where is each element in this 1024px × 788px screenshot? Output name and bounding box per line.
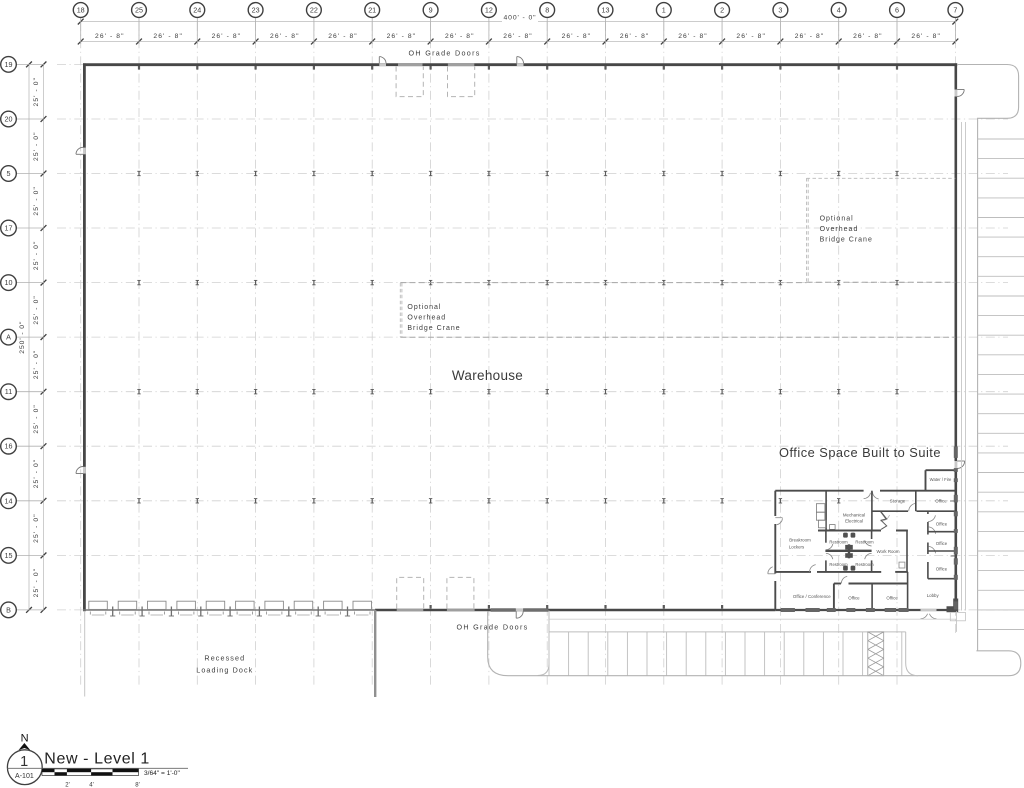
svg-text:B: B xyxy=(6,605,11,614)
svg-text:25' - 0": 25' - 0" xyxy=(33,459,40,489)
svg-text:4: 4 xyxy=(837,6,841,15)
svg-text:20: 20 xyxy=(5,115,13,124)
svg-text:400' - 0": 400' - 0" xyxy=(504,15,537,22)
svg-text:19: 19 xyxy=(5,60,13,69)
svg-text:Breakroom: Breakroom xyxy=(789,538,811,543)
svg-text:26' - 8": 26' - 8" xyxy=(620,33,650,40)
svg-text:Optional: Optional xyxy=(820,215,854,222)
svg-text:Lockers: Lockers xyxy=(789,545,805,550)
svg-text:26' - 8": 26' - 8" xyxy=(212,33,242,40)
svg-text:16: 16 xyxy=(5,442,13,451)
svg-text:Mechanical: Mechanical xyxy=(843,513,865,518)
svg-text:14: 14 xyxy=(5,496,13,505)
svg-text:26' - 8": 26' - 8" xyxy=(328,33,358,40)
svg-text:9: 9 xyxy=(429,6,433,15)
svg-text:25' - 0": 25' - 0" xyxy=(33,568,40,598)
svg-text:Bridge Crane: Bridge Crane xyxy=(820,237,873,244)
svg-text:10: 10 xyxy=(5,278,13,287)
svg-text:Office Space Built to Suite: Office Space Built to Suite xyxy=(779,445,941,460)
svg-text:OH Grade Doors: OH Grade Doors xyxy=(456,623,528,632)
svg-text:2': 2' xyxy=(65,783,69,788)
svg-text:26' - 8": 26' - 8" xyxy=(153,33,183,40)
svg-text:Office: Office xyxy=(886,596,898,601)
svg-text:26' - 8": 26' - 8" xyxy=(95,33,125,40)
svg-text:25' - 0": 25' - 0" xyxy=(33,186,40,216)
svg-text:Electrical: Electrical xyxy=(845,519,863,524)
svg-text:26' - 8": 26' - 8" xyxy=(678,33,708,40)
svg-text:25' - 0": 25' - 0" xyxy=(33,241,40,271)
svg-text:26' - 8": 26' - 8" xyxy=(445,33,475,40)
svg-text:Restroom: Restroom xyxy=(855,540,874,545)
svg-text:A: A xyxy=(6,333,11,342)
svg-text:Bridge Crane: Bridge Crane xyxy=(407,325,460,332)
svg-text:Office: Office xyxy=(936,541,948,546)
svg-text:4': 4' xyxy=(89,783,93,788)
svg-text:Warehouse: Warehouse xyxy=(452,368,523,383)
svg-text:Office: Office xyxy=(936,567,948,572)
svg-text:Storage: Storage xyxy=(890,499,906,504)
svg-text:Loading Dock: Loading Dock xyxy=(196,665,253,674)
svg-text:25' - 0": 25' - 0" xyxy=(33,131,40,161)
svg-text:8: 8 xyxy=(545,6,549,15)
svg-text:25' - 0": 25' - 0" xyxy=(33,404,40,434)
svg-text:6: 6 xyxy=(895,6,899,15)
svg-text:25: 25 xyxy=(135,6,143,15)
svg-text:26' - 8": 26' - 8" xyxy=(736,33,766,40)
svg-text:26' - 8": 26' - 8" xyxy=(911,33,941,40)
svg-text:18: 18 xyxy=(77,6,85,15)
svg-text:3/64" = 1'-0": 3/64" = 1'-0" xyxy=(144,770,180,777)
svg-text:7: 7 xyxy=(953,6,957,15)
svg-text:Office / Conference: Office / Conference xyxy=(793,594,831,599)
svg-text:8': 8' xyxy=(135,783,139,788)
svg-text:13: 13 xyxy=(602,6,610,15)
svg-text:New - Level 1: New - Level 1 xyxy=(44,751,150,768)
svg-text:N: N xyxy=(21,733,29,745)
svg-text:17: 17 xyxy=(5,224,13,233)
svg-text:15: 15 xyxy=(5,551,13,560)
svg-text:26' - 8": 26' - 8" xyxy=(270,33,300,40)
svg-text:Restroom: Restroom xyxy=(855,562,874,567)
svg-text:21: 21 xyxy=(368,6,376,15)
svg-text:24: 24 xyxy=(193,6,201,15)
svg-text:Work Room: Work Room xyxy=(876,549,899,554)
svg-text:Restroom: Restroom xyxy=(829,540,848,545)
svg-text:26' - 8": 26' - 8" xyxy=(503,33,533,40)
svg-text:Lobby: Lobby xyxy=(927,593,940,598)
svg-text:26' - 8": 26' - 8" xyxy=(387,33,417,40)
svg-text:23: 23 xyxy=(252,6,260,15)
svg-text:Recessed: Recessed xyxy=(204,654,245,663)
svg-text:Overhead: Overhead xyxy=(820,226,859,233)
svg-text:A-101: A-101 xyxy=(15,773,34,780)
svg-text:3: 3 xyxy=(778,6,782,15)
svg-text:25' - 0": 25' - 0" xyxy=(33,513,40,543)
svg-text:22: 22 xyxy=(310,6,318,15)
svg-text:Optional: Optional xyxy=(407,304,441,311)
svg-text:Overhead: Overhead xyxy=(407,314,446,321)
svg-text:26' - 8": 26' - 8" xyxy=(853,33,883,40)
svg-text:Office: Office xyxy=(848,596,860,601)
svg-text:5: 5 xyxy=(7,169,11,178)
svg-text:2: 2 xyxy=(720,6,724,15)
svg-text:1: 1 xyxy=(20,754,28,770)
svg-text:11: 11 xyxy=(5,387,12,396)
svg-text:Office: Office xyxy=(936,522,948,527)
svg-text:Office: Office xyxy=(935,499,947,504)
svg-text:12: 12 xyxy=(485,6,493,15)
svg-text:25' - 0": 25' - 0" xyxy=(33,77,40,107)
svg-text:25' - 0": 25' - 0" xyxy=(33,295,40,325)
svg-text:26' - 8": 26' - 8" xyxy=(562,33,592,40)
svg-text:1: 1 xyxy=(662,6,666,15)
svg-text:25' - 0": 25' - 0" xyxy=(33,350,40,380)
svg-text:26' - 8": 26' - 8" xyxy=(795,33,825,40)
svg-text:OH Grade Doors: OH Grade Doors xyxy=(409,49,481,58)
svg-text:Water / Fire: Water / Fire xyxy=(930,477,952,482)
